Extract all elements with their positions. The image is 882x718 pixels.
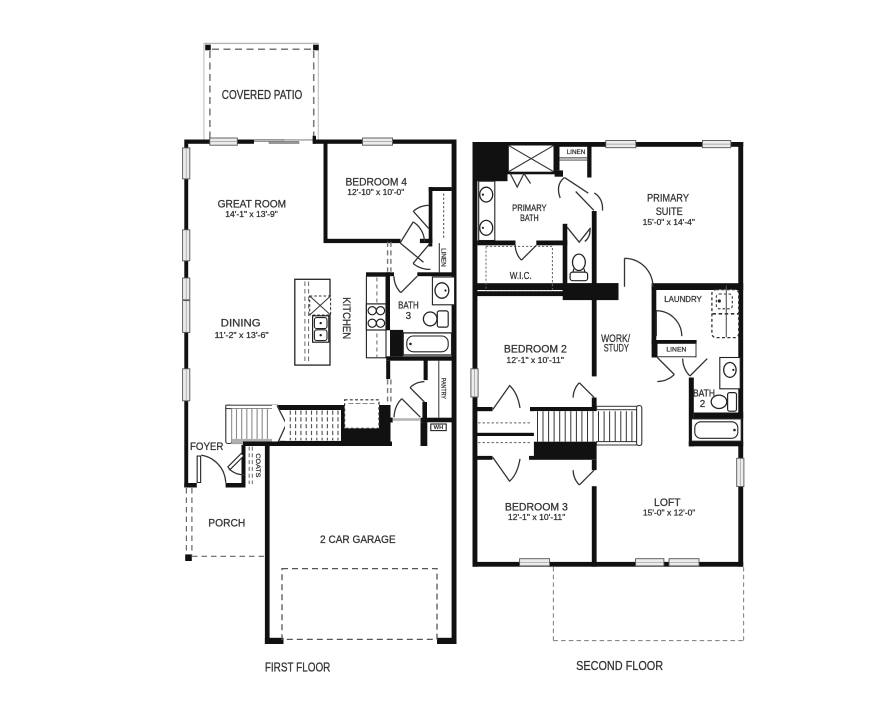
svg-text:11'-2" x 13'-6": 11'-2" x 13'-6" <box>215 331 269 340</box>
svg-text:FOYER: FOYER <box>190 441 224 453</box>
svg-text:SECOND FLOOR: SECOND FLOOR <box>576 658 663 673</box>
svg-text:W.I.C.: W.I.C. <box>510 271 532 282</box>
svg-text:LOFT: LOFT <box>654 497 681 509</box>
svg-text:BATH: BATH <box>520 213 539 223</box>
svg-text:BEDROOM 4: BEDROOM 4 <box>345 176 407 188</box>
svg-text:COVERED PATIO: COVERED PATIO <box>222 88 303 102</box>
svg-text:PORCH: PORCH <box>208 518 245 530</box>
svg-text:LINEN: LINEN <box>567 149 586 156</box>
svg-text:FIRST FLOOR: FIRST FLOOR <box>265 659 331 674</box>
svg-text:LAUNDRY: LAUNDRY <box>664 294 702 304</box>
svg-text:12'-1" x 10'-11": 12'-1" x 10'-11" <box>506 356 564 365</box>
svg-text:PANTRY: PANTRY <box>440 378 447 400</box>
svg-text:15'-0" x 12'-0": 15'-0" x 12'-0" <box>643 508 696 517</box>
svg-text:PRIMARY: PRIMARY <box>512 203 547 213</box>
svg-text:14'-1" x 13'-9": 14'-1" x 13'-9" <box>225 210 278 219</box>
svg-text:COATS: COATS <box>254 453 261 477</box>
svg-text:SUITE: SUITE <box>656 206 683 218</box>
svg-text:2: 2 <box>700 399 705 410</box>
svg-text:PRIMARY: PRIMARY <box>647 193 689 205</box>
svg-text:KITCHEN: KITCHEN <box>340 297 352 339</box>
svg-text:3: 3 <box>406 311 412 322</box>
svg-text:DINING: DINING <box>221 317 261 329</box>
svg-text:LINEN: LINEN <box>440 248 447 267</box>
svg-text:2 CAR GARAGE: 2 CAR GARAGE <box>320 534 396 546</box>
svg-text:GREAT ROOM: GREAT ROOM <box>218 198 287 210</box>
svg-text:LINEN: LINEN <box>666 347 686 354</box>
svg-text:15'-0" x 14'-4": 15'-0" x 14'-4" <box>643 218 695 227</box>
svg-text:BEDROOM 2: BEDROOM 2 <box>504 344 567 356</box>
svg-text:BEDROOM 3: BEDROOM 3 <box>505 501 568 513</box>
svg-text:STUDY: STUDY <box>604 343 629 355</box>
svg-text:12'-1" x 10'-11": 12'-1" x 10'-11" <box>508 513 566 522</box>
svg-text:12'-10" x 10'-0": 12'-10" x 10'-0" <box>347 188 404 197</box>
svg-text:WH: WH <box>434 425 444 431</box>
